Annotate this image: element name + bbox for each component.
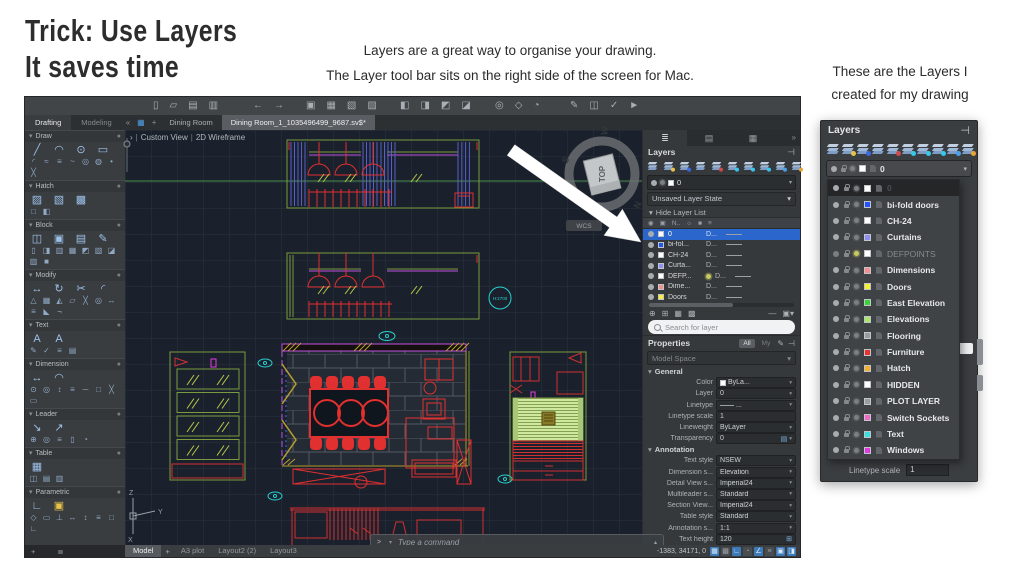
freeze-icon[interactable]	[854, 284, 859, 289]
mleader-icon[interactable]: ↘	[28, 421, 46, 435]
color-swatch[interactable]	[864, 414, 871, 421]
dynamic-input-toggle-icon[interactable]: ◨	[787, 547, 796, 556]
layer-tool-9-icon[interactable]	[791, 162, 802, 172]
panel-overflow-icon[interactable]: »	[792, 130, 800, 146]
palette-header-modify[interactable]: ▾Modify●	[25, 269, 125, 281]
parallel-icon[interactable]: ▭	[41, 513, 52, 523]
layer-list-item-windows[interactable]: Windows	[828, 442, 959, 458]
etransmit-icon[interactable]: ◧	[400, 100, 409, 112]
multiline-icon[interactable]: ≡	[54, 157, 65, 167]
layout-tab-1[interactable]: Layout2 (2)	[211, 545, 263, 557]
layer-on-icon[interactable]	[648, 294, 654, 300]
join-icon[interactable]: ≡	[28, 307, 39, 317]
rotate-icon[interactable]: ↻	[50, 282, 68, 296]
move-icon[interactable]: ↔	[28, 282, 46, 296]
property-value-field[interactable]: ByLayer▾	[716, 422, 796, 433]
layer-list-item-hidden[interactable]: HIDDEN	[828, 377, 959, 393]
freeze-icon[interactable]	[854, 218, 859, 223]
freeze-icon[interactable]	[854, 333, 859, 338]
attr-sync-icon[interactable]: ▦	[67, 246, 78, 256]
add-leader-icon[interactable]: ⊕	[28, 435, 39, 445]
layer-tool-5-icon[interactable]	[901, 143, 915, 155]
color-swatch[interactable]	[658, 284, 664, 290]
lock-icon[interactable]	[844, 351, 849, 355]
filter-my-button[interactable]: My	[759, 339, 774, 348]
layer-footer-tool-2-icon[interactable]: ▦	[674, 309, 682, 318]
tolerance-icon[interactable]: □	[93, 385, 104, 395]
plot-icon[interactable]	[876, 267, 882, 274]
gradient-icon[interactable]: ▩	[72, 193, 90, 207]
isodraft-toggle-icon[interactable]: ∠	[754, 547, 763, 556]
chevron-down-icon[interactable]: ▾	[789, 514, 792, 520]
color-swatch[interactable]	[658, 252, 664, 258]
plot-icon[interactable]	[876, 250, 882, 257]
layer-list-item-bi-fold-doors[interactable]: bi-fold doors	[828, 196, 959, 212]
attr-manage-icon[interactable]: ▥	[54, 246, 65, 256]
lock-icon[interactable]	[844, 253, 849, 257]
layer-tool-4-icon[interactable]	[886, 143, 900, 155]
layer-list-item-doors[interactable]: Doors	[828, 278, 959, 294]
layer-list-item-east-elevation[interactable]: East Elevation	[828, 295, 959, 311]
lock-icon[interactable]	[844, 204, 849, 208]
layer-tool-5-icon[interactable]	[727, 162, 738, 172]
layer-on-icon[interactable]	[648, 231, 654, 237]
page-setup-icon[interactable]: ▧	[347, 100, 356, 112]
lock-icon[interactable]	[844, 367, 849, 371]
chevron-down-icon[interactable]: ▾	[789, 525, 792, 531]
color-swatch[interactable]	[864, 332, 871, 339]
donut-icon[interactable]: ◍	[93, 157, 104, 167]
layer-list-item-text[interactable]: Text	[828, 426, 959, 442]
image-icon[interactable]: ▧	[93, 246, 104, 256]
open-file-icon[interactable]: ▱	[170, 100, 178, 112]
plot-icon[interactable]	[876, 316, 882, 323]
viewport-controls[interactable]: ›|Custom View|2D Wireframe	[130, 133, 245, 142]
layer-on-icon[interactable]	[648, 273, 654, 279]
attr-define-icon[interactable]: ▯	[28, 246, 39, 256]
chevron-down-icon[interactable]: ▾	[789, 391, 792, 397]
xref-icon[interactable]: ◩	[80, 246, 91, 256]
palette-header-parametric[interactable]: ▾Parametric●	[25, 486, 125, 498]
lock-icon[interactable]	[844, 384, 849, 388]
chevron-down-icon[interactable]: ▾	[789, 380, 792, 386]
table-icon[interactable]: ▦	[28, 460, 46, 474]
layer-on-icon[interactable]	[833, 251, 839, 257]
layer-row-DEFP...[interactable]: DEFP...D...	[643, 271, 800, 282]
current-layer-dropdown[interactable]: 0▾	[647, 175, 796, 190]
pan-icon[interactable]: ◇	[515, 100, 523, 112]
chevron-down-icon[interactable]: ▾	[789, 503, 792, 509]
lineweight-display-toggle-icon[interactable]: ≡	[765, 547, 774, 556]
new-tab-icon[interactable]: +	[148, 118, 161, 127]
layer-tool-6-icon[interactable]	[743, 162, 754, 172]
array-icon[interactable]: ▦	[41, 296, 52, 306]
color-swatch[interactable]	[658, 273, 664, 279]
plot-icon[interactable]	[876, 381, 882, 388]
stretch-icon[interactable]: ↔	[106, 296, 117, 306]
coincident-icon[interactable]: ◇	[28, 513, 39, 523]
color-swatch[interactable]	[658, 242, 664, 248]
document-tab-1[interactable]: Dining Room_1_1035496499_9687.sv$*	[222, 115, 375, 130]
layer-tool-3-icon[interactable]	[695, 162, 706, 172]
lock-icon[interactable]	[844, 286, 849, 290]
property-extra-icon[interactable]: ▤	[781, 435, 788, 443]
plot-icon[interactable]	[876, 185, 882, 192]
chevron-down-icon[interactable]: ▾	[789, 480, 792, 486]
layer-tool-2-icon[interactable]	[679, 162, 690, 172]
properties-header-icon-1[interactable]: ⊣	[788, 339, 795, 348]
section-options-icon[interactable]: ●	[117, 449, 121, 458]
layer-on-icon[interactable]	[648, 284, 654, 290]
tab-grid-icon[interactable]: ▦	[134, 118, 148, 127]
layer-list-item-defpoints[interactable]: DEFPOINTS	[828, 246, 959, 262]
layer-on-icon[interactable]	[833, 365, 839, 371]
property-value-field[interactable]: Elevation▾	[716, 467, 796, 478]
object-snap-toggle-icon[interactable]: ▣	[776, 547, 785, 556]
lock-icon[interactable]	[844, 220, 849, 224]
layer-on-icon[interactable]	[833, 300, 839, 306]
layer-row-Doors[interactable]: DoorsD...	[643, 292, 800, 303]
section-options-icon[interactable]: ●	[117, 360, 121, 369]
property-value-field[interactable]: 0▾	[716, 388, 796, 399]
search-icon[interactable]: ◎	[495, 100, 504, 112]
block-editor-icon[interactable]: ✎	[94, 232, 112, 246]
mleader-style-icon[interactable]: ◔	[80, 435, 91, 445]
table-export-icon[interactable]: ▤	[41, 474, 52, 484]
remove-leader-icon[interactable]: ◎	[41, 435, 52, 445]
filter-all-button[interactable]: All	[739, 339, 754, 348]
layer-tool-7-icon[interactable]	[759, 162, 770, 172]
auto-constrain-icon[interactable]: ∟	[28, 524, 39, 534]
lock-icon[interactable]	[844, 449, 849, 453]
document-tab-0[interactable]: Dining Room	[160, 115, 221, 130]
save-icon[interactable]: ▤	[188, 100, 197, 112]
circle-icon[interactable]: ⊙	[72, 143, 90, 157]
layer-tool-0-icon[interactable]	[826, 143, 840, 155]
layer-list-item-switch-sockets[interactable]: Switch Sockets	[828, 409, 959, 425]
spline-icon[interactable]: ~	[67, 157, 78, 167]
layer-tool-1-icon[interactable]	[841, 143, 855, 155]
property-extra-icon[interactable]: ⊞	[786, 535, 792, 543]
color-swatch[interactable]	[864, 201, 871, 208]
spell-check-icon[interactable]: ✓	[41, 346, 52, 356]
color-swatch[interactable]	[658, 263, 664, 269]
geometric-constraint-icon[interactable]: ∟	[28, 499, 46, 513]
layer-list-item-dimensions[interactable]: Dimensions	[828, 262, 959, 278]
layer-tool-4-icon[interactable]	[711, 162, 722, 172]
section-options-icon[interactable]: ●	[117, 221, 121, 230]
freeze-icon[interactable]	[854, 399, 859, 404]
color-swatch[interactable]	[864, 250, 871, 257]
plot-icon[interactable]	[876, 431, 882, 438]
property-value-field[interactable]: ...▾	[716, 400, 796, 411]
publish-icon[interactable]: ►	[629, 100, 639, 112]
panel-dock-icon[interactable]: ⊣	[960, 124, 970, 137]
freeze-icon[interactable]	[854, 268, 859, 273]
chevron-down-icon[interactable]: ▾	[789, 402, 792, 408]
ortho-toggle-icon[interactable]: ∟	[732, 547, 741, 556]
ellipse-icon[interactable]: ◎	[80, 157, 91, 167]
color-swatch[interactable]	[864, 217, 871, 224]
layer-on-icon[interactable]	[833, 415, 839, 421]
property-value-field[interactable]: 1:1▾	[716, 523, 796, 534]
property-value-field[interactable]: Imperial24▾	[716, 500, 796, 511]
layer-tool-7-icon[interactable]	[931, 143, 945, 155]
property-value-field[interactable]: Imperial24▾	[716, 478, 796, 489]
dim-ordinate-icon[interactable]: ↕	[54, 385, 65, 395]
layer-tool-8-icon[interactable]	[775, 162, 786, 172]
layer-tool-1-icon[interactable]	[663, 162, 674, 172]
lock-icon[interactable]	[844, 269, 849, 273]
dim-linear-icon[interactable]: ↔	[28, 371, 46, 385]
construction-line-icon[interactable]: ╳	[28, 168, 39, 178]
markup-import-icon[interactable]: ◫	[589, 100, 598, 112]
hatch-pattern-icon[interactable]: ▧	[50, 193, 68, 207]
section-general[interactable]: ▾General	[643, 366, 800, 377]
field-icon[interactable]: ▤	[67, 346, 78, 356]
layer-tool-8-icon[interactable]	[946, 143, 960, 155]
layer-on-icon[interactable]	[833, 333, 839, 339]
layer-footer-tool-0-icon[interactable]: ⊕	[649, 309, 656, 318]
freeze-icon[interactable]	[854, 251, 859, 256]
equal-icon[interactable]: ≡	[93, 513, 104, 523]
layers-tab[interactable]: ≣	[643, 130, 687, 146]
explode-icon[interactable]: ╳	[80, 296, 91, 306]
hatch-icon[interactable]: ▨	[28, 193, 46, 207]
export-icon[interactable]: ◨	[420, 100, 429, 112]
save-as-icon[interactable]: ▥	[209, 100, 218, 112]
panel-dock-icon[interactable]: ⊣	[787, 147, 795, 158]
layer-row-Dime...[interactable]: Dime...D...	[643, 282, 800, 293]
share-cloud-icon[interactable]: ◪	[461, 100, 470, 112]
offset-icon[interactable]: ◎	[93, 296, 104, 306]
layer-on-icon[interactable]	[648, 263, 654, 269]
layer-tool-6-icon[interactable]	[916, 143, 930, 155]
lock-icon[interactable]	[844, 318, 849, 322]
layer-list-item-ch-24[interactable]: CH-24	[828, 213, 959, 229]
orbit-icon[interactable]: ◔	[533, 100, 539, 112]
dim-continue-icon[interactable]: ─	[80, 385, 91, 395]
freeze-icon[interactable]	[854, 300, 859, 305]
print-preview-icon[interactable]: ▦	[326, 100, 335, 112]
layer-tool-9-icon[interactable]	[961, 143, 975, 155]
layer-on-icon[interactable]	[833, 185, 839, 191]
lock-icon[interactable]	[844, 302, 849, 306]
horizontal-icon[interactable]: ↔	[67, 513, 78, 523]
color-swatch[interactable]	[864, 365, 871, 372]
palette-header-text[interactable]: ▾Text●	[25, 319, 125, 331]
new-file-icon[interactable]: ▯	[153, 100, 159, 112]
create-block-icon[interactable]: ▣	[50, 232, 68, 246]
chevron-down-icon[interactable]: ▾	[789, 458, 792, 464]
freeze-icon[interactable]	[854, 366, 859, 371]
dwf-icon[interactable]: ▨	[28, 257, 39, 267]
vertical-icon[interactable]: ↕	[80, 513, 91, 523]
drawing-canvas[interactable]: ›|Custom View|2D Wireframe	[125, 130, 642, 545]
layer-search-field[interactable]: Search for layer	[648, 320, 795, 334]
stack-icon[interactable]: ≣	[57, 547, 63, 556]
plot-icon[interactable]	[876, 201, 882, 208]
hide-layer-list-toggle[interactable]: ▾Hide Layer List	[643, 207, 800, 218]
plot-icon[interactable]	[876, 365, 882, 372]
write-block-icon[interactable]: ▤	[72, 232, 90, 246]
palette-header-block[interactable]: ▾Block●	[25, 219, 125, 231]
line-icon[interactable]: ╱	[28, 143, 46, 157]
point-cloud-icon[interactable]: ■	[41, 257, 52, 267]
markup-assist-icon[interactable]: ✓	[610, 100, 618, 112]
layer-row-Curta...[interactable]: Curta...D...	[643, 261, 800, 272]
layer-footer-tool-3-icon[interactable]: ▩	[688, 309, 696, 318]
dim-diameter-icon[interactable]: ◎	[41, 385, 52, 395]
fillet-icon[interactable]: ◜	[28, 157, 39, 167]
layer-on-icon[interactable]	[833, 202, 839, 208]
layer-list-item-furniture[interactable]: Furniture	[828, 344, 959, 360]
blocks-tab[interactable]: ▦	[731, 130, 775, 146]
chevron-down-icon[interactable]: ▾	[789, 425, 792, 431]
lock-icon[interactable]	[844, 417, 849, 421]
viewport-view-label[interactable]: Custom View	[141, 133, 188, 142]
chevron-down-icon[interactable]: ▾	[789, 179, 792, 186]
attr-edit-icon[interactable]: ◨	[41, 246, 52, 256]
dim-baseline-icon[interactable]: ≡	[67, 385, 78, 395]
layer-footer-tool-1-icon[interactable]: ⊞	[662, 309, 669, 318]
property-value-field[interactable]: Standard▾	[716, 489, 796, 500]
new-layout-icon[interactable]: +	[161, 547, 173, 556]
sheet-set-tab[interactable]: ▤	[687, 130, 731, 146]
palette-header-dimension[interactable]: ▾Dimension●	[25, 358, 125, 370]
color-swatch[interactable]	[658, 294, 664, 300]
section-options-icon[interactable]: ●	[117, 488, 121, 497]
layer-on-icon[interactable]	[833, 267, 839, 273]
chamfer-icon[interactable]: ◣	[41, 307, 52, 317]
color-swatch[interactable]	[864, 234, 871, 241]
dim-style-icon[interactable]: ▭	[28, 396, 39, 406]
color-swatch[interactable]	[864, 431, 871, 438]
layer-list-item-0[interactable]: 0	[828, 180, 959, 196]
break-icon[interactable]: ¬	[54, 307, 65, 317]
freeze-icon[interactable]	[854, 382, 859, 387]
layer-state-dropdown[interactable]: Unsaved Layer State▾	[647, 192, 796, 206]
text-align-icon[interactable]: ≡	[54, 346, 65, 356]
property-value-field[interactable]: Standard▾	[716, 511, 796, 522]
section-options-icon[interactable]: ●	[117, 132, 121, 141]
layout-tab-0[interactable]: A3 plot	[174, 545, 211, 557]
freeze-icon[interactable]	[854, 432, 859, 437]
space-dropdown[interactable]: Model Space▾	[647, 351, 796, 366]
property-value-field[interactable]: ByLa...▾	[716, 377, 796, 388]
open-folder-icon[interactable]: ◩	[441, 100, 450, 112]
property-value-field[interactable]: 1	[716, 411, 796, 422]
scale-icon[interactable]: △	[28, 296, 39, 306]
layer-on-icon[interactable]	[833, 447, 839, 453]
layer-list-item-flooring[interactable]: Flooring	[828, 328, 959, 344]
freeze-icon[interactable]	[854, 415, 859, 420]
polyline-icon[interactable]: ≈	[41, 157, 52, 167]
region-icon[interactable]: ◧	[41, 207, 52, 217]
align-leaders-icon[interactable]: ≡	[54, 435, 65, 445]
lock-icon[interactable]	[844, 236, 849, 240]
plot-icon[interactable]	[876, 349, 882, 356]
undo-icon[interactable]: ←	[253, 100, 263, 112]
fix-icon[interactable]: □	[106, 513, 117, 523]
text-icon[interactable]: A	[50, 332, 68, 346]
palette-header-leader[interactable]: ▾Leader●	[25, 408, 125, 420]
layer-on-icon[interactable]	[833, 349, 839, 355]
collapse-icon[interactable]: «	[122, 118, 134, 127]
redo-icon[interactable]: →	[274, 100, 284, 112]
property-value-field[interactable]: NSEW▾	[716, 455, 796, 466]
plot-icon[interactable]	[876, 234, 882, 241]
layer-on-icon[interactable]	[648, 252, 654, 258]
dim-angular-icon[interactable]: ◠	[50, 371, 68, 385]
workspace-tab-modeling[interactable]: Modeling	[71, 115, 121, 130]
layer-list-item-curtains[interactable]: Curtains	[828, 229, 959, 245]
model-tab[interactable]: Model	[125, 545, 161, 557]
layer-on-icon[interactable]	[833, 431, 839, 437]
color-swatch[interactable]	[864, 349, 871, 356]
section-annotation[interactable]: ▾Annotation	[643, 444, 800, 455]
property-value-field[interactable]: 0▤▾	[716, 433, 796, 444]
layer-column-2[interactable]: N..	[672, 220, 680, 227]
section-options-icon[interactable]: ●	[117, 410, 121, 419]
grid-toggle-icon[interactable]: ▦	[710, 547, 719, 556]
data-link-icon[interactable]: ◫	[28, 474, 39, 484]
layer-row-CH-24[interactable]: CH-24D...	[643, 250, 800, 261]
layer-on-icon[interactable]	[833, 284, 839, 290]
lock-icon[interactable]	[844, 187, 849, 191]
markup-icon[interactable]: ✎	[570, 100, 578, 112]
palette-header-table[interactable]: ▾Table●	[25, 447, 125, 459]
freeze-icon[interactable]	[706, 274, 711, 279]
center-mark-icon[interactable]: ╳	[106, 385, 117, 395]
underlay-icon[interactable]: ◪	[106, 246, 117, 256]
layer-list-item-elevations[interactable]: Elevations	[828, 311, 959, 327]
section-options-icon[interactable]: ●	[117, 182, 121, 191]
layout-tab-2[interactable]: Layout3	[263, 545, 304, 557]
palette-header-draw[interactable]: ▾Draw●	[25, 130, 125, 142]
layer-on-icon[interactable]	[833, 218, 839, 224]
print-icon[interactable]: ▣	[306, 100, 315, 112]
layer-list-item-plot-layer[interactable]: PLOT LAYER	[828, 393, 959, 409]
layer-column-5[interactable]: ≡	[708, 220, 712, 227]
trim-icon[interactable]: ✂	[72, 282, 90, 296]
boundary-icon[interactable]: □	[28, 207, 39, 217]
plot-icon[interactable]: ▨	[367, 100, 376, 112]
property-value-field[interactable]: 120⊞	[716, 534, 796, 545]
properties-header-icon-0[interactable]: ✎	[777, 339, 784, 348]
table-style-icon[interactable]: ▥	[54, 474, 65, 484]
arc-icon[interactable]: ◠	[50, 143, 68, 157]
layer-on-icon[interactable]	[648, 242, 654, 248]
insert-block-icon[interactable]: ◫	[28, 232, 46, 246]
palette-header-hatch[interactable]: ▾Hatch●	[25, 180, 125, 192]
freeze-icon[interactable]	[854, 235, 859, 240]
rectangle-icon[interactable]: ▭	[94, 143, 112, 157]
mtext-icon[interactable]: A	[28, 332, 46, 346]
layer-on-icon[interactable]	[833, 398, 839, 404]
layer-row-0[interactable]: 0D...	[643, 229, 800, 240]
mirror-icon[interactable]: ◭	[54, 296, 65, 306]
freeze-icon[interactable]	[854, 448, 859, 453]
color-swatch[interactable]	[864, 398, 871, 405]
color-swatch[interactable]	[864, 185, 871, 192]
layer-column-1[interactable]: ▣	[660, 219, 666, 227]
layer-on-icon[interactable]	[833, 316, 839, 322]
dim-radius-icon[interactable]: ⊙	[28, 385, 39, 395]
layer-footer-right-0-icon[interactable]: —	[768, 309, 776, 318]
add-icon[interactable]: +	[31, 547, 35, 556]
lock-icon[interactable]	[844, 335, 849, 339]
